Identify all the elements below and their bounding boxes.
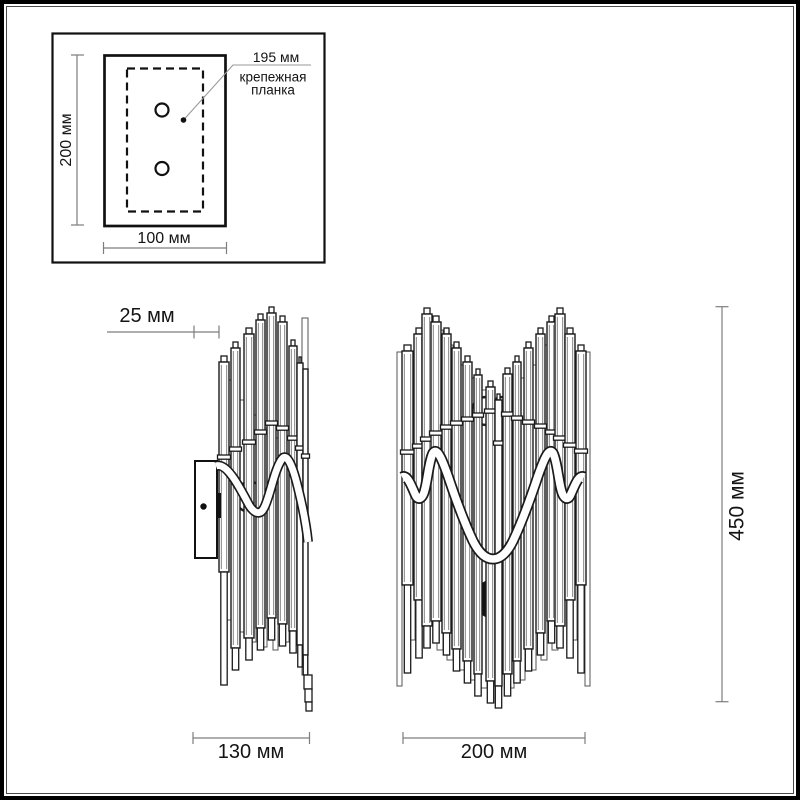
side-width-dimension-label: 130 мм [218,742,284,762]
lamp-dimension-sheet: 200 мм 100 мм 195 мм крепежная планка 25… [0,0,800,800]
lamp-side-view-drawing [195,307,312,711]
inset-height-dimension-label: 200 мм [59,113,75,166]
inset-width-dimension-label: 100 мм [137,231,190,247]
lamp-front-view-drawing [397,308,590,708]
mounting-bar-length-label: 195 мм [253,50,300,64]
technical-drawing [0,0,800,800]
front-width-dimension-label: 200 мм [461,742,527,762]
depth-dimension-label: 25 мм [119,306,174,326]
height-dimension-label: 450 мм [727,471,748,541]
mounting-plate-inset-drawing [53,34,325,263]
mounting-bar-caption-line2: планка [251,83,295,97]
